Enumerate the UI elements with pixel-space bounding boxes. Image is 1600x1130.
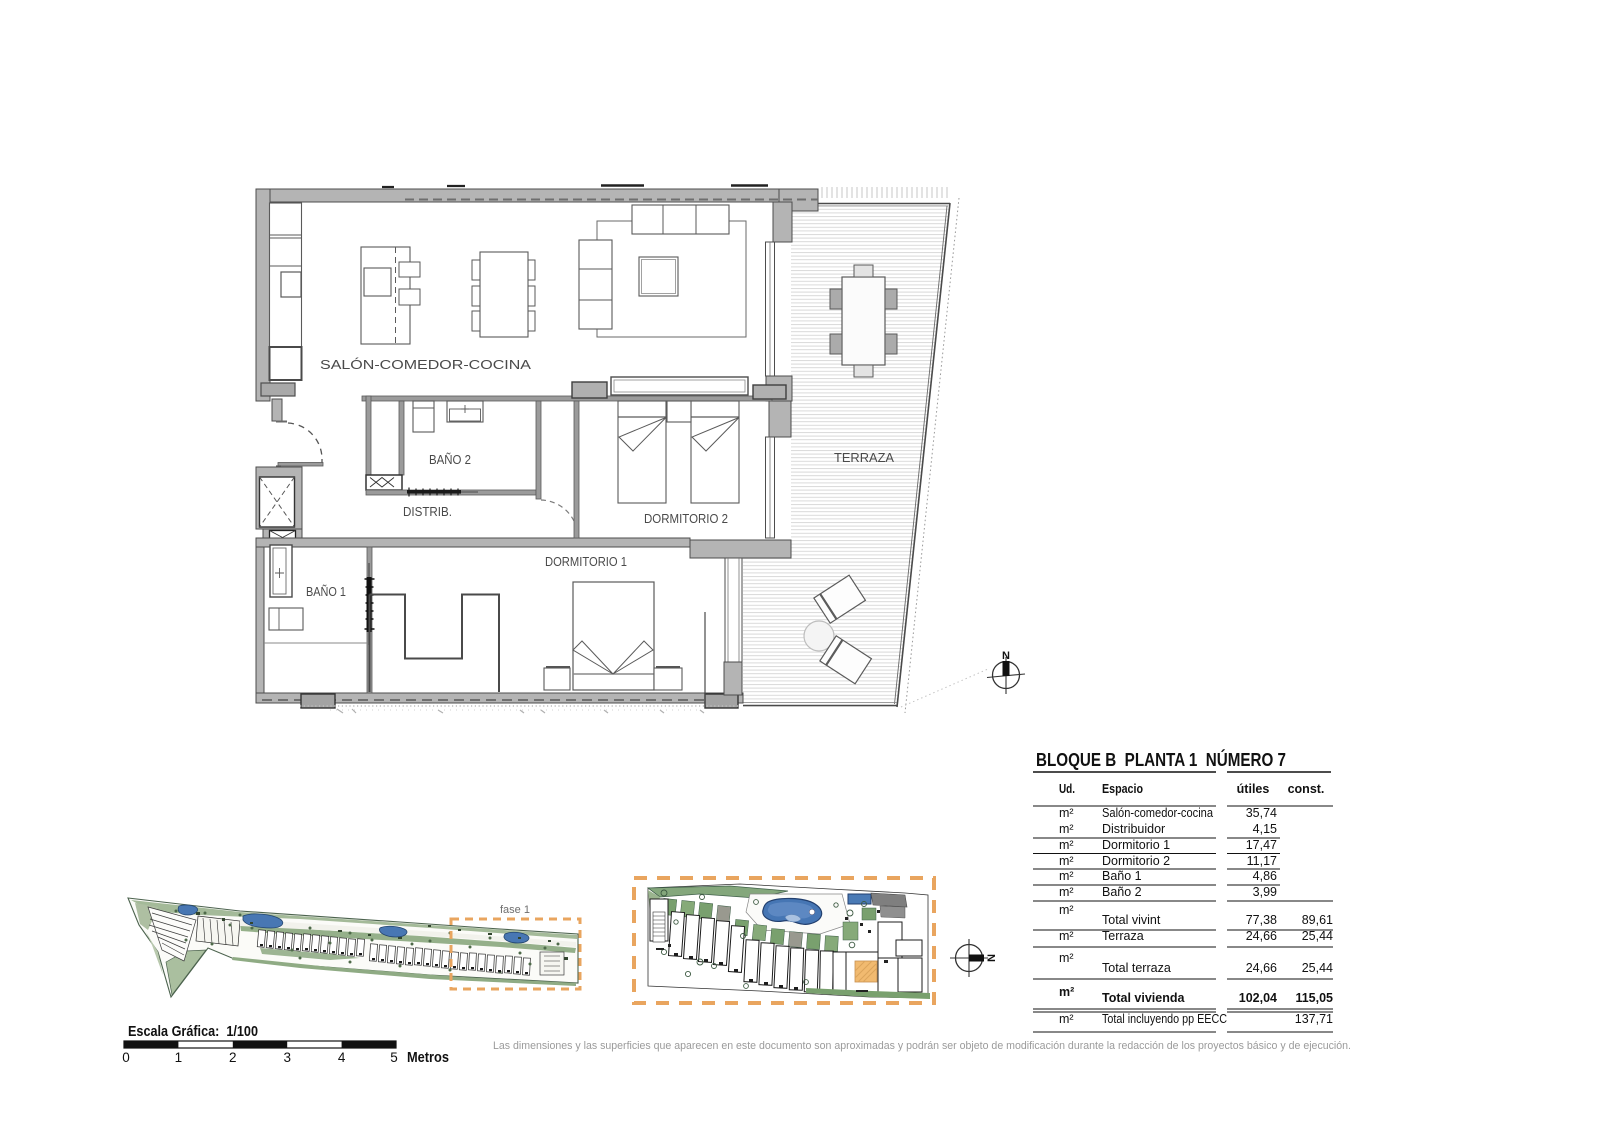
svg-text:m²: m² [1059,985,1074,999]
svg-text:m²: m² [1059,869,1074,883]
svg-text:m²: m² [1059,929,1074,943]
svg-text:3: 3 [283,1050,291,1065]
svg-text:Total vivint: Total vivint [1102,913,1161,927]
svg-text:102,04: 102,04 [1239,991,1277,1005]
svg-text:Dormitorio 2: Dormitorio 2 [1102,854,1170,868]
svg-text:4: 4 [338,1050,346,1065]
svg-text:const.: const. [1288,782,1325,796]
svg-text:Total terraza: Total terraza [1102,961,1171,975]
svg-text:1: 1 [175,1050,183,1065]
svg-text:24,66: 24,66 [1246,929,1277,943]
svg-text:Baño 2: Baño 2 [1102,885,1142,899]
svg-text:fase 1: fase 1 [500,904,530,916]
svg-text:4,15: 4,15 [1253,822,1277,836]
svg-text:m²: m² [1059,822,1074,836]
svg-text:DORMITORIO 2: DORMITORIO 2 [644,512,728,526]
svg-text:17,47: 17,47 [1246,838,1277,852]
svg-text:TERRAZA: TERRAZA [834,451,895,465]
svg-text:Baño 1: Baño 1 [1102,869,1142,883]
svg-text:137,71: 137,71 [1295,1012,1333,1026]
svg-text:m²: m² [1059,854,1074,868]
svg-text:3,99: 3,99 [1253,885,1277,899]
svg-text:SALÓN-COMEDOR-COCINA: SALÓN-COMEDOR-COCINA [320,357,532,372]
svg-text:89,61: 89,61 [1302,913,1333,927]
svg-text:11,17: 11,17 [1247,854,1277,868]
svg-text:m²: m² [1059,885,1074,899]
svg-text:Terraza: Terraza [1102,929,1144,943]
svg-text:DISTRIB.: DISTRIB. [403,505,452,519]
svg-text:Distribuidor: Distribuidor [1102,822,1165,836]
svg-text:4,86: 4,86 [1253,869,1277,883]
svg-text:Salón-comedor-cocina: Salón-comedor-cocina [1102,806,1213,820]
svg-text:Espacio: Espacio [1102,782,1143,796]
svg-text:m²: m² [1059,951,1074,965]
svg-text:Ud.: Ud. [1059,782,1075,796]
svg-text:m²: m² [1059,1012,1074,1026]
svg-text:25,44: 25,44 [1302,961,1333,975]
svg-text:77,38: 77,38 [1246,913,1277,927]
svg-text:Las dimensiones y las superfic: Las dimensiones y las superficies que ap… [493,1040,1351,1052]
svg-text:útiles: útiles [1237,782,1270,796]
svg-text:Total incluyendo pp EECC: Total incluyendo pp EECC [1102,1012,1227,1026]
svg-text:5: 5 [390,1050,398,1065]
svg-text:DORMITORIO 1: DORMITORIO 1 [545,555,627,569]
svg-text:m²: m² [1059,806,1074,820]
svg-text:Metros: Metros [407,1050,449,1066]
svg-text:2: 2 [229,1050,237,1065]
svg-text:35,74: 35,74 [1246,806,1277,820]
svg-text:0: 0 [122,1050,130,1065]
svg-text:m²: m² [1059,838,1074,852]
svg-text:Total vivienda: Total vivienda [1102,991,1185,1005]
svg-text:BAÑO 2: BAÑO 2 [429,453,471,467]
svg-text:m²: m² [1059,903,1074,917]
svg-text:Escala Gráfica: 1/100: Escala Gráfica: 1/100 [128,1024,258,1040]
svg-text:24,66: 24,66 [1246,961,1277,975]
svg-text:BLOQUE B PLANTA 1 NÚMERO 7: BLOQUE B PLANTA 1 NÚMERO 7 [1036,749,1286,770]
svg-text:25,44: 25,44 [1302,929,1333,943]
svg-text:N: N [1002,650,1010,662]
svg-text:Dormitorio 1: Dormitorio 1 [1102,838,1170,852]
svg-text:N: N [985,954,997,962]
svg-text:BAÑO 1: BAÑO 1 [306,585,346,599]
svg-text:115,05: 115,05 [1295,991,1333,1005]
